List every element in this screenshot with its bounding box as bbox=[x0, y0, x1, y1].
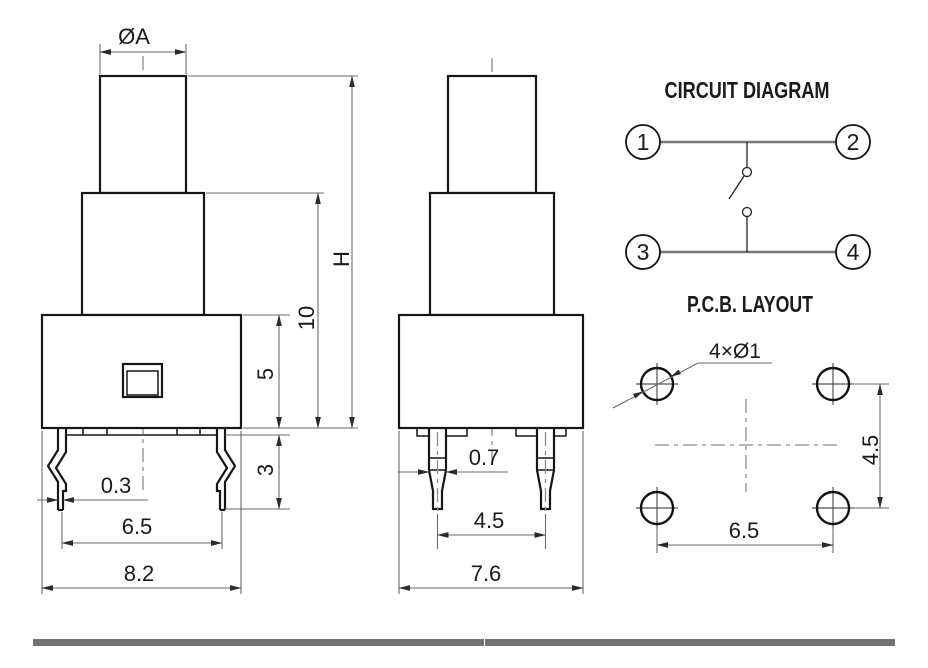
dim-label-cap-diameter: ØA bbox=[118, 24, 150, 49]
pcb-layout-title: P.C.B. LAYOUT bbox=[687, 291, 813, 317]
dim-label-lead-length: 3 bbox=[253, 464, 278, 476]
dim-label-hole-pitch-horizontal: 6.5 bbox=[729, 518, 760, 543]
dim-label-hole-pitch-vertical: 4.5 bbox=[858, 435, 883, 466]
circuit-diagram: CIRCUIT DIAGRAM 1 2 3 4 bbox=[626, 77, 870, 269]
dim-body-width: 8.2 bbox=[42, 431, 241, 594]
switch-arm bbox=[729, 176, 744, 199]
dim-hole-pitch-vertical: 4.5 bbox=[851, 384, 889, 508]
dim-label-pin-width: 0.7 bbox=[469, 445, 500, 470]
dim-lead-span: 6.5 bbox=[62, 512, 222, 549]
side-bushing bbox=[430, 193, 554, 315]
front-view: ØA H 10 5 3 bbox=[37, 24, 358, 594]
front-right-leg bbox=[217, 429, 235, 510]
terminal-3-label: 3 bbox=[637, 239, 650, 265]
dim-pin-width: 0.7 bbox=[398, 445, 508, 472]
side-view: 0.7 4.5 7.6 bbox=[398, 58, 583, 594]
dim-label-lead-span: 6.5 bbox=[122, 514, 153, 539]
pcb-hole-callout: 4×Ø1 bbox=[613, 340, 772, 408]
switch-contact-top bbox=[743, 168, 752, 177]
dim-label-pin-span: 4.5 bbox=[474, 508, 505, 533]
side-right-pin bbox=[516, 428, 566, 512]
dim-label-total-height: H bbox=[329, 251, 354, 267]
footer-divider-bar bbox=[33, 639, 895, 646]
pcb-hole-bottom-left bbox=[636, 487, 678, 529]
pcb-hole-top-left bbox=[636, 363, 678, 405]
pcb-hole-callout-label: 4×Ø1 bbox=[709, 340, 761, 363]
dim-label-body-width: 8.2 bbox=[124, 561, 155, 586]
pcb-hole-top-right bbox=[812, 363, 854, 405]
technical-drawing-canvas: ØA H 10 5 3 bbox=[0, 0, 928, 668]
front-left-leg bbox=[48, 429, 66, 510]
terminal-2-label: 2 bbox=[847, 129, 860, 155]
dim-body-height: 5 bbox=[243, 315, 290, 428]
circuit-diagram-title: CIRCUIT DIAGRAM bbox=[665, 77, 830, 103]
pcb-hole-bottom-right bbox=[812, 487, 854, 529]
callout-arrow-upper bbox=[671, 370, 681, 377]
dim-label-body-depth: 7.6 bbox=[471, 561, 502, 586]
front-plunger bbox=[100, 76, 186, 193]
callout-arrow-lower bbox=[633, 392, 643, 399]
drawing-sheet: ØA H 10 5 3 bbox=[0, 0, 928, 668]
dim-hole-pitch-horizontal: 6.5 bbox=[657, 518, 833, 553]
dim-lead-length: 3 bbox=[225, 435, 290, 509]
pcb-layout: P.C.B. LAYOUT 4×Ø1 bbox=[613, 291, 889, 553]
terminal-3: 3 bbox=[626, 235, 660, 269]
dim-label-body-height: 5 bbox=[253, 368, 278, 380]
dim-pin-span: 4.5 bbox=[438, 508, 546, 549]
side-plunger bbox=[448, 76, 536, 193]
terminal-4: 4 bbox=[836, 235, 870, 269]
dim-label-lead-thickness: 0.3 bbox=[101, 473, 132, 498]
switch-contact-bottom bbox=[743, 208, 752, 217]
side-left-pin bbox=[417, 428, 467, 512]
terminal-4-label: 4 bbox=[847, 239, 860, 265]
terminal-2: 2 bbox=[836, 125, 870, 159]
front-bushing bbox=[82, 193, 204, 315]
dim-label-upper-height: 10 bbox=[294, 306, 319, 330]
side-body bbox=[399, 315, 583, 428]
terminal-1-label: 1 bbox=[637, 129, 650, 155]
terminal-1: 1 bbox=[626, 125, 660, 159]
